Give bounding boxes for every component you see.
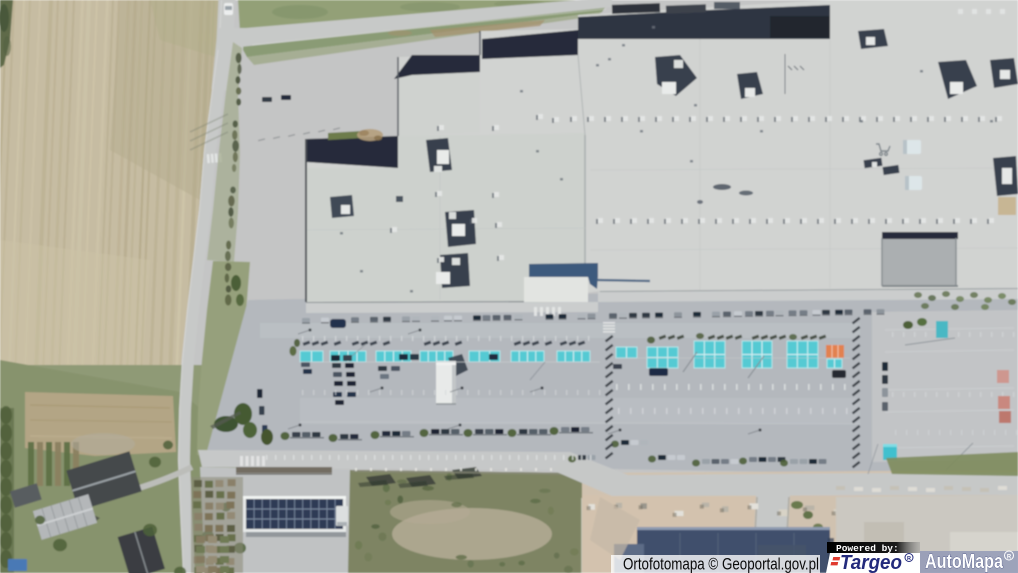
- svg-text:Ortofotomapa © Geoportal.gov.p: Ortofotomapa © Geoportal.gov.pl: [623, 555, 819, 573]
- svg-text:AutoMapa: AutoMapa: [925, 551, 1004, 573]
- svg-text:R: R: [907, 556, 911, 562]
- svg-text:R: R: [1007, 554, 1012, 560]
- svg-text:Targeo: Targeo: [840, 552, 902, 573]
